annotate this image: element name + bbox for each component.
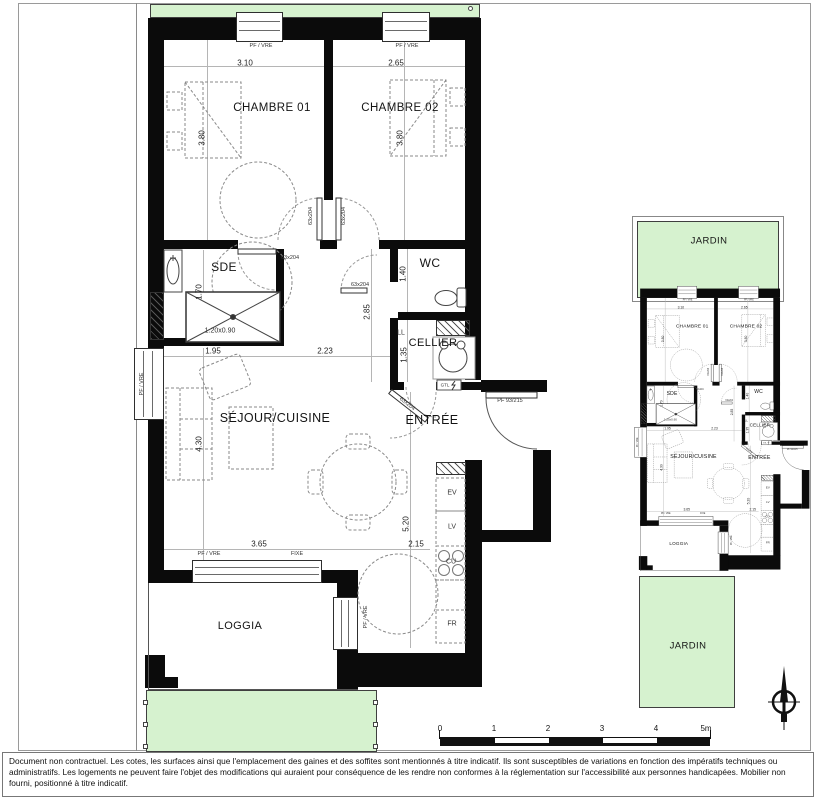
wall-bedroom-divider — [324, 40, 333, 200]
wall-entry-step — [481, 530, 533, 542]
window-label: PF / VRE — [250, 43, 273, 49]
window-label: PF / VRE — [363, 606, 369, 629]
dim-sejour-height: 4.30 — [195, 436, 204, 452]
duct-hatch-kitchen — [436, 462, 466, 475]
wall-sejour-bottom-b — [322, 570, 358, 583]
wall-kitchen-right — [465, 460, 482, 655]
scale-tick-3: 3 — [600, 724, 604, 733]
dim-cellier-height: 1.35 — [400, 347, 409, 363]
scale-seg — [495, 738, 549, 745]
room-label-entree: ENTRÉE — [405, 413, 458, 427]
room-label-cellier: CELLIER — [409, 337, 458, 349]
sink-label: EV — [447, 490, 456, 497]
mini-jardin-bottom-label: JARDIN — [670, 641, 707, 652]
window-chambre2 — [382, 12, 430, 42]
window-loggia — [333, 597, 358, 650]
door-size-label: 63x204 — [351, 282, 369, 288]
floor-plan-sheet: PF / VRE PF / VRE 3.10 2.65 CHAMBRE 01 C… — [0, 0, 816, 800]
wall-top — [148, 18, 481, 40]
wall-hall-3 — [379, 240, 481, 249]
disclaimer-box: Document non contractuel. Les cotes, les… — [2, 752, 814, 797]
gtl-label: GTL — [441, 383, 450, 388]
scale-seg — [549, 738, 603, 745]
loggia-boundary — [148, 583, 358, 690]
mini-jardin-top-label: JARDIN — [691, 236, 728, 247]
dishwasher-label: LV — [448, 524, 456, 531]
wall-sde-right — [276, 249, 284, 346]
fence-post — [373, 722, 378, 727]
dim-line — [203, 348, 204, 560]
dim-kitchen-width: 2.15 — [408, 540, 424, 549]
north-compass-icon — [764, 664, 804, 744]
scale-tick-4: 4 — [654, 724, 658, 733]
fence-post — [373, 744, 378, 749]
room-label-wc: WC — [420, 256, 441, 270]
room-label-loggia: LOGGIA — [218, 620, 263, 632]
dim-sde-height: 1.70 — [195, 284, 204, 300]
dim-wc-height: 1.40 — [399, 266, 408, 282]
fence-post — [143, 722, 148, 727]
scale-end-tick — [710, 730, 711, 739]
dim-chambre2-width: 2.65 — [388, 59, 404, 68]
hob-label: CU — [446, 559, 456, 566]
wall-left-lower — [148, 420, 164, 583]
wall-cellier-bottom-a — [390, 382, 404, 390]
wall-wc-cellier — [398, 312, 481, 320]
scale-tick-2: 2 — [546, 724, 550, 733]
room-label-sejour: SÉJOUR/CUISINE — [220, 411, 330, 425]
dim-loggia-width: 3.65 — [251, 540, 267, 549]
dim-chambre2-height: 3.80 — [396, 130, 405, 146]
entry-door-label: PF 93/215 — [497, 398, 522, 404]
wall-sejour-bottom-a — [148, 570, 193, 583]
fence-post — [143, 700, 148, 705]
garden-bottom — [146, 690, 377, 752]
dim-sejour-width-b: 2.23 — [317, 347, 333, 356]
dim-hall-height: 2.85 — [363, 304, 372, 320]
duct-hatch-sde — [150, 292, 164, 340]
duct-hatch-cellier — [436, 320, 470, 336]
window-label: PF / VRE — [396, 43, 419, 49]
wall-bottom — [340, 653, 482, 687]
wall-entry-top — [481, 380, 547, 392]
fence-post — [468, 6, 473, 11]
scale-seg — [441, 738, 495, 745]
washer-label: LL — [397, 330, 405, 337]
scale-tick-1: 1 — [492, 724, 496, 733]
window-chambre1 — [236, 12, 283, 42]
room-label-chambre1: CHAMBRE 01 — [233, 102, 311, 114]
window-label: PF / VRE — [198, 551, 221, 557]
scale-bar-track — [440, 737, 710, 746]
wall-hall-1 — [164, 240, 238, 249]
wall-hall-2 — [320, 240, 337, 249]
wall-wc-left-a — [390, 249, 398, 282]
door-size-label: 63x204 — [341, 207, 347, 225]
dim-chambre1-height: 3.80 — [198, 130, 207, 146]
fence-post — [143, 744, 148, 749]
window-sejour-bottom — [192, 560, 322, 583]
garden-strip-top — [150, 4, 480, 18]
fence-post — [373, 700, 378, 705]
wall-entry-right — [533, 450, 551, 542]
wall-sde-bottom — [164, 338, 282, 346]
dim-line — [164, 356, 390, 357]
window-label: PF / VRE — [139, 373, 145, 396]
room-label-chambre2: CHAMBRE 02 — [361, 102, 439, 114]
scale-seg — [603, 738, 657, 745]
dim-line — [164, 549, 430, 550]
door-size-label: 63x204 — [281, 255, 299, 261]
dim-chambre1-width: 3.10 — [237, 59, 253, 68]
room-label-sde: SDE — [211, 260, 237, 274]
scale-seg — [657, 738, 709, 745]
scale-bar: 0 1 2 3 4 5m — [430, 724, 720, 752]
dim-line — [207, 40, 208, 240]
dim-sejour-width-a: 1.95 — [205, 347, 221, 356]
fixed-window-label: FIXE — [291, 551, 303, 557]
disclaimer-text: Document non contractuel. Les cotes, les… — [3, 753, 813, 793]
fridge-label: FR — [447, 621, 456, 628]
mini-garden-top — [637, 221, 779, 298]
dim-kitchen-height: 5.20 — [402, 516, 411, 532]
dim-shower: 1.20x0.90 — [205, 328, 236, 335]
door-size-label: 63x204 — [308, 207, 314, 225]
